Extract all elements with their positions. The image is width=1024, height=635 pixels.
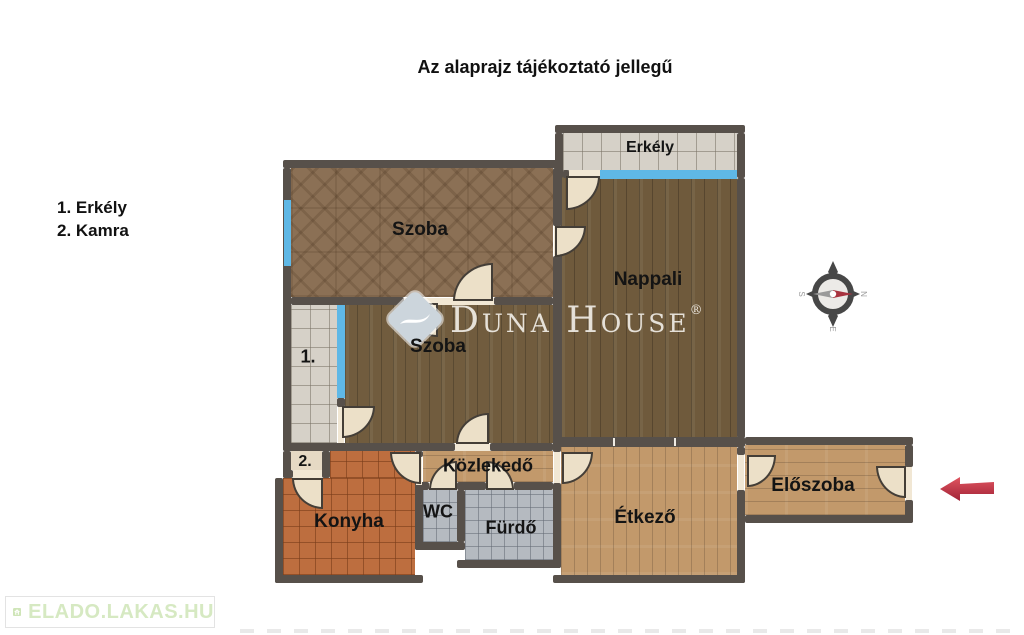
- doorway: [738, 455, 744, 490]
- floor-erkely-1: [291, 305, 337, 443]
- doorway: [293, 470, 322, 478]
- wall: [283, 160, 562, 168]
- wall: [553, 168, 562, 226]
- wall: [905, 445, 913, 467]
- wall: [553, 437, 745, 447]
- floor-szoba-middle: [345, 305, 553, 443]
- wall: [745, 515, 913, 523]
- passage-mark: [674, 438, 676, 446]
- wall: [737, 490, 745, 583]
- wall: [490, 443, 553, 451]
- wall: [555, 125, 745, 133]
- wall: [457, 490, 465, 542]
- window-strip: [284, 200, 291, 266]
- doorway: [455, 444, 490, 451]
- wall: [737, 178, 745, 438]
- floorplan-page: Az alaprajz tájékoztató jellegű 1. Erkél…: [0, 0, 1024, 635]
- wall: [291, 297, 404, 305]
- wall: [494, 297, 553, 305]
- legend-item-erkely: 1. Erkély: [57, 196, 129, 219]
- wall: [283, 443, 455, 451]
- passage-mark: [613, 438, 615, 446]
- room-label-szoba-middle: Szoba: [410, 336, 466, 358]
- room-label-nappali: Nappali: [614, 269, 683, 291]
- room-label-furdo: Fürdő: [486, 518, 537, 539]
- entrance-arrow-icon: [938, 474, 996, 509]
- room-label-erkely-1: 1.: [300, 347, 315, 368]
- wall: [514, 482, 553, 490]
- wall: [553, 443, 561, 452]
- room-label-wc: WC: [423, 502, 453, 523]
- room-label-szoba-top: Szoba: [392, 219, 448, 241]
- wall: [457, 482, 486, 490]
- page-title: Az alaprajz tájékoztató jellegű: [240, 57, 850, 78]
- legend-item-kamra: 2. Kamra: [57, 219, 129, 242]
- wall: [275, 478, 283, 583]
- house-icon: [13, 600, 21, 624]
- wall: [415, 485, 423, 550]
- wall: [745, 437, 913, 445]
- wall: [322, 451, 330, 478]
- wall: [457, 560, 561, 568]
- compass-icon: W S N E: [799, 252, 867, 339]
- compass-letter-left: S: [799, 291, 806, 296]
- compass-letter-bottom: E: [828, 326, 837, 331]
- room-label-etkezo: Étkező: [614, 507, 675, 529]
- doorway: [906, 467, 912, 500]
- elado-lakas-logo: ELADO.LAKAS.HU: [5, 596, 215, 628]
- wall: [553, 256, 562, 443]
- legend: 1. Erkély 2. Kamra: [57, 196, 129, 242]
- wall: [415, 542, 465, 550]
- room-label-kamra-2: 2.: [298, 453, 311, 471]
- wall: [283, 470, 293, 478]
- wall: [553, 575, 745, 583]
- wall: [275, 575, 423, 583]
- window-strip: [337, 305, 345, 398]
- doorway: [554, 452, 560, 483]
- floor-nappali: [561, 176, 737, 437]
- wall: [553, 483, 561, 568]
- wall: [737, 133, 745, 178]
- room-label-konyha: Konyha: [314, 511, 384, 533]
- room-label-erkely-top: Erkély: [626, 139, 674, 157]
- wall: [737, 447, 745, 455]
- room-label-kozlekedo: Közlekedő: [443, 456, 533, 477]
- footer-watermark-strip: [240, 629, 1010, 633]
- compass-letter-right: N: [859, 291, 867, 297]
- window-strip: [600, 170, 737, 179]
- room-label-eloszoba: Előszoba: [771, 475, 854, 497]
- logo-text: ELADO.LAKAS.HU: [28, 601, 214, 624]
